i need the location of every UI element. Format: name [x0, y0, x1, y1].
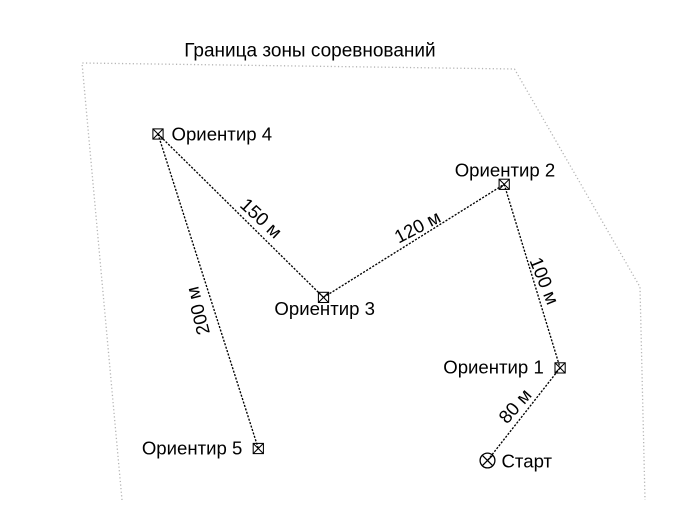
svg-text:Ориентир 4: Ориентир 4 [172, 124, 273, 145]
svg-text:Ориентир 5: Ориентир 5 [142, 438, 243, 459]
svg-text:Ориентир 1: Ориентир 1 [443, 357, 544, 378]
svg-text:Ориентир 3: Ориентир 3 [274, 298, 375, 319]
svg-text:Граница зоны соревнований: Граница зоны соревнований [184, 41, 435, 62]
svg-text:Ориентир 2: Ориентир 2 [455, 160, 556, 181]
svg-text:Старт: Старт [502, 451, 553, 472]
